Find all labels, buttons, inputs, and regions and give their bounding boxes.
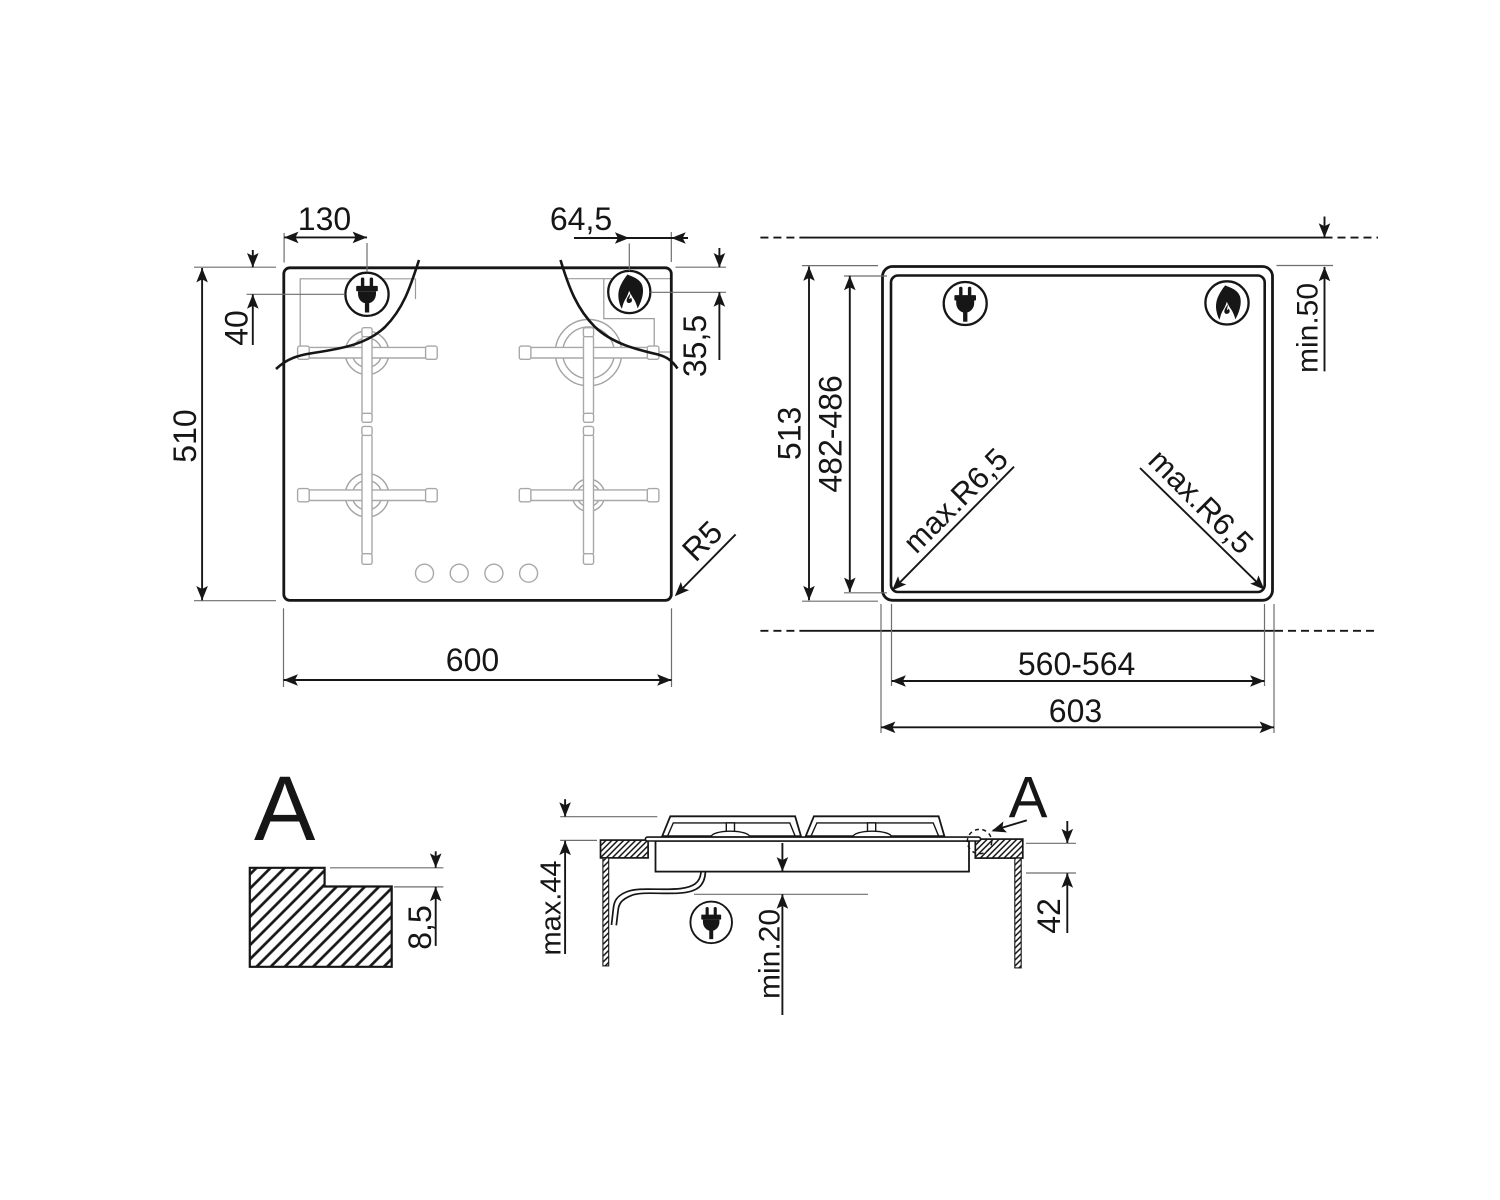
svg-text:42: 42	[1031, 898, 1067, 934]
svg-text:560-564: 560-564	[1018, 646, 1135, 682]
svg-text:603: 603	[1049, 693, 1102, 729]
svg-text:40: 40	[219, 310, 255, 346]
svg-text:max.44: max.44	[536, 860, 568, 955]
svg-text:A: A	[1009, 765, 1048, 830]
svg-text:A: A	[254, 758, 316, 860]
svg-text:8,5: 8,5	[402, 905, 438, 949]
svg-text:482-486: 482-486	[813, 375, 849, 492]
svg-text:64,5: 64,5	[550, 201, 612, 237]
svg-text:min.50: min.50	[1292, 283, 1325, 373]
svg-text:600: 600	[446, 642, 499, 678]
svg-text:513: 513	[772, 407, 808, 460]
svg-text:min.20: min.20	[754, 909, 787, 999]
svg-text:130: 130	[298, 201, 351, 237]
svg-text:35,5: 35,5	[677, 315, 713, 377]
svg-text:R5: R5	[675, 514, 729, 568]
svg-text:510: 510	[167, 409, 203, 462]
